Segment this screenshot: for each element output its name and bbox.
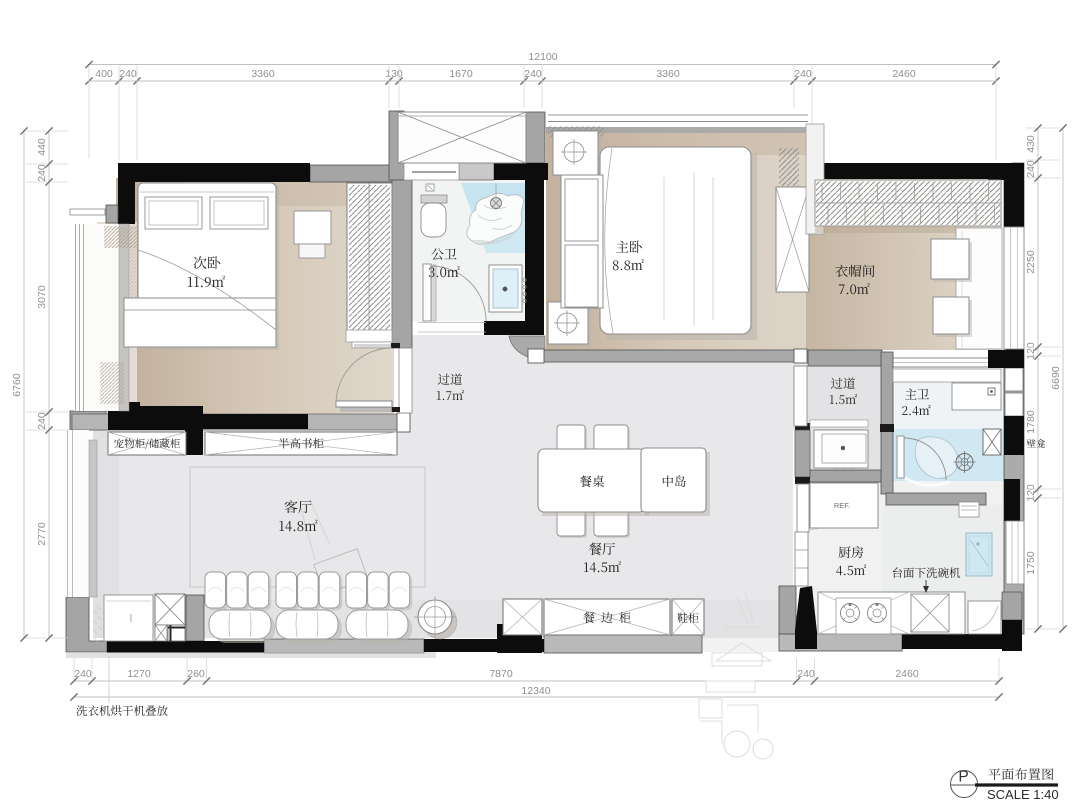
- svg-text:1750: 1750: [1025, 551, 1037, 575]
- svg-text:2250: 2250: [1025, 250, 1037, 274]
- svg-text:2460: 2460: [892, 68, 916, 80]
- svg-text:240: 240: [36, 412, 48, 430]
- svg-text:1670: 1670: [449, 68, 473, 80]
- svg-text:240: 240: [797, 668, 815, 680]
- svg-text:12340: 12340: [521, 685, 550, 697]
- svg-text:440: 440: [36, 138, 48, 156]
- svg-text:REF.: REF.: [834, 501, 850, 510]
- svg-text:SCALE 1:40: SCALE 1:40: [987, 787, 1059, 802]
- svg-text:240: 240: [74, 668, 92, 680]
- svg-text:7870: 7870: [489, 668, 513, 680]
- svg-text:12100: 12100: [528, 51, 557, 63]
- svg-text:240: 240: [36, 164, 48, 182]
- svg-text:130: 130: [385, 68, 403, 80]
- svg-text:240: 240: [119, 68, 137, 80]
- svg-text:240: 240: [1025, 160, 1037, 178]
- svg-text:240: 240: [524, 68, 542, 80]
- svg-text:6760: 6760: [11, 373, 23, 397]
- svg-text:120: 120: [1025, 342, 1037, 360]
- svg-text:3360: 3360: [656, 68, 680, 80]
- svg-text:1780: 1780: [1025, 410, 1037, 434]
- svg-text:240: 240: [794, 68, 812, 80]
- svg-text:P: P: [958, 769, 968, 786]
- svg-text:430: 430: [1025, 135, 1037, 153]
- svg-text:6690: 6690: [1050, 366, 1062, 390]
- svg-text:400: 400: [95, 68, 113, 80]
- svg-text:2460: 2460: [895, 668, 919, 680]
- svg-text:3070: 3070: [36, 285, 48, 309]
- svg-text:3360: 3360: [251, 68, 275, 80]
- svg-text:120: 120: [1025, 484, 1037, 502]
- svg-text:1270: 1270: [127, 668, 151, 680]
- svg-text:260: 260: [187, 668, 205, 680]
- svg-text:2770: 2770: [36, 522, 48, 546]
